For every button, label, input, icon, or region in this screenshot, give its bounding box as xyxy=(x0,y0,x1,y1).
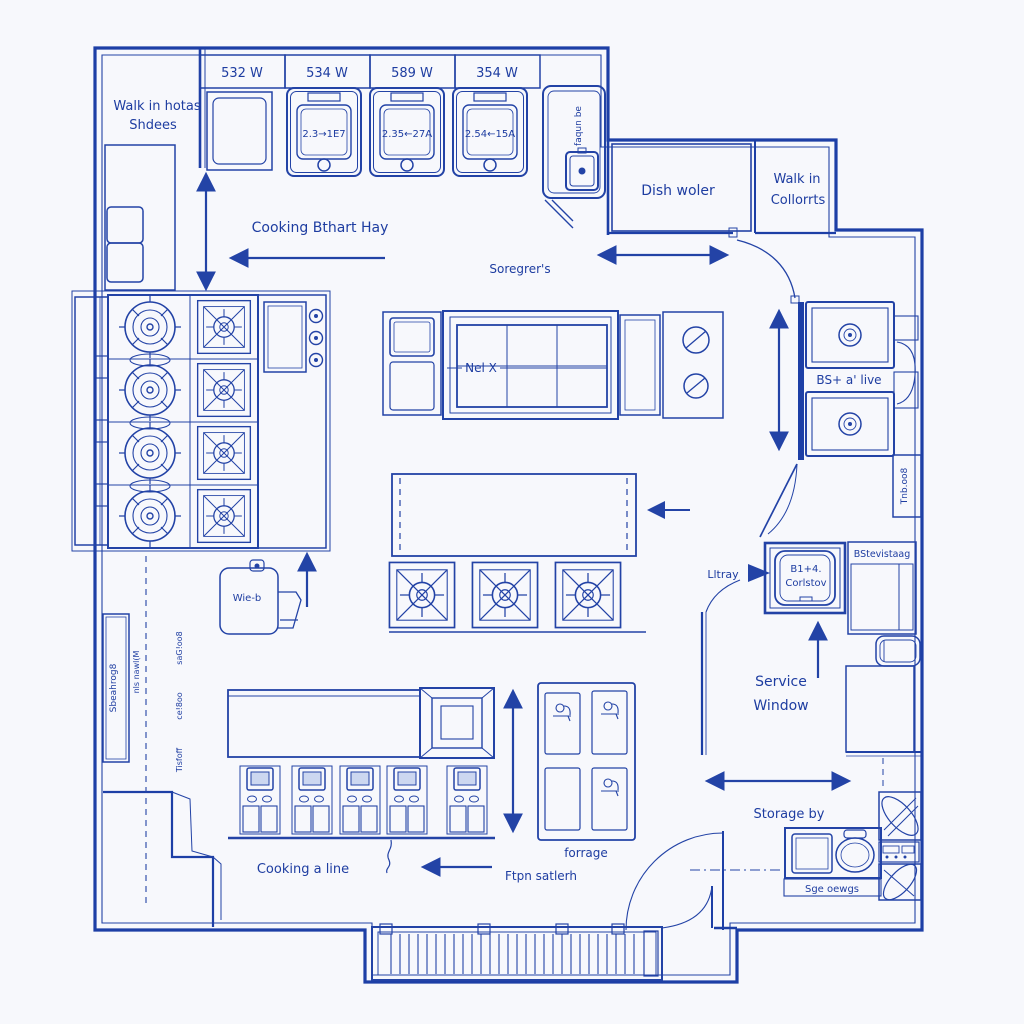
alcove: faqun be xyxy=(543,86,605,228)
door-swing-arc xyxy=(626,833,723,930)
prep-sink-label-1: B1+4. xyxy=(790,564,821,575)
table-knob-panel xyxy=(663,312,723,418)
table-top: Nel X xyxy=(443,311,618,419)
oven-label-1: 2.3→1E7 xyxy=(302,129,345,140)
center-island xyxy=(389,474,690,632)
shelf-unit xyxy=(105,145,175,290)
tray-shelf xyxy=(876,636,920,666)
table-left-cabinet xyxy=(383,312,441,415)
star-burner-1 xyxy=(198,301,251,354)
dim-label-3: 589 W xyxy=(391,66,433,81)
equipment-row: 2.3→1E7 2.35←27A 2.54←15A xyxy=(207,88,527,176)
range xyxy=(72,291,330,551)
table-label: Nel X xyxy=(465,361,497,375)
outer-walls xyxy=(95,48,922,982)
island-burner-1 xyxy=(389,562,454,627)
prep-sink-label-2: Corlstov xyxy=(785,578,826,589)
pantry-vtext: Sbeahrog8 xyxy=(109,663,119,712)
right-counter xyxy=(846,666,914,752)
wash-sink-label: Sge oewgs xyxy=(805,884,859,895)
round-burner-4 xyxy=(119,485,181,547)
litray-door-arc xyxy=(706,580,740,612)
storage-door xyxy=(626,831,723,930)
dolly-panel xyxy=(879,842,919,862)
cooking-line: Cooking a line Ftpn satlerh xyxy=(228,688,577,883)
hood-aisle: Cooking Bthart Hay Soregrer's xyxy=(232,220,726,276)
sink-unit-1 xyxy=(806,302,894,368)
round-burner-1 xyxy=(119,296,181,358)
cookline-cabinet-2 xyxy=(292,766,332,834)
wall-vtext-3: Tisfoff xyxy=(175,747,184,773)
shelf-bin-2 xyxy=(107,243,143,282)
shelf-bin-1 xyxy=(107,207,143,243)
dim-label-4: 354 W xyxy=(476,66,518,81)
star-burner-2 xyxy=(198,364,251,417)
wall-vtext-1: saG!oo8 xyxy=(175,631,184,664)
round-burner-3 xyxy=(119,422,181,484)
range-hinge-panel xyxy=(75,297,108,545)
wall-vtext-2: ce!8oo xyxy=(175,692,184,720)
island-burner-2 xyxy=(472,562,537,627)
cookline-counter xyxy=(228,690,420,757)
mixer-arm xyxy=(278,592,301,628)
pantry-box: Sbeahrog8 xyxy=(103,614,129,762)
prep-unit xyxy=(207,92,272,170)
oven-window xyxy=(264,302,306,372)
aisle-label: Soregrer's xyxy=(489,262,550,276)
storage-unit-label: forrage xyxy=(564,846,608,860)
sink-right-label: BS+ a' live xyxy=(816,373,881,387)
storage-unit: forrage xyxy=(538,683,635,860)
mixer-machine: Wie-b xyxy=(220,555,307,634)
service-area: Lltray B1+4. Corlstov BStevistaag Servic… xyxy=(706,542,920,752)
dolly-1 xyxy=(876,791,924,841)
walkin-cold-room: Walk in Collorrts xyxy=(771,172,826,208)
prep-sink: B1+4. Corlstov xyxy=(765,543,845,613)
hood-outline xyxy=(72,291,330,551)
right-shelf: BStevistaag xyxy=(848,542,916,634)
walkin-shelves-label-1: Walk in hotas xyxy=(113,99,201,114)
corner-step-wall xyxy=(103,792,213,927)
round-burner-2 xyxy=(119,359,181,421)
storage-area-label: Storage by xyxy=(754,807,825,822)
kitchen-blueprint-page: 532 W 534 W 589 W 354 W 2.3→1E7 2.35←27A… xyxy=(0,0,1024,1024)
bottom-door xyxy=(662,886,712,928)
walkin-cold-label-1: Walk in xyxy=(773,172,820,187)
cookline-cabinet-1 xyxy=(240,766,280,834)
walkin-shelves-label-2: Shdees xyxy=(129,118,177,133)
hood-label: Cooking Bthart Hay xyxy=(252,220,389,236)
bottom-grate xyxy=(372,924,662,980)
faucet-icon xyxy=(601,702,619,719)
star-burner-3 xyxy=(198,427,251,480)
cook-line-label: Cooking a line xyxy=(257,862,349,877)
wall-fixture-1 xyxy=(894,316,918,340)
sink-area-door xyxy=(760,464,797,537)
kitchen-blueprint: 532 W 534 W 589 W 354 W 2.3→1E7 2.35←27A… xyxy=(0,0,1024,1024)
outer-wall-line xyxy=(95,48,922,982)
right-sink-station: BS+ a' live Tnb.oo8 xyxy=(760,302,921,537)
right-vtext: Tnb.oo8 xyxy=(900,467,910,505)
walkin-shelves-room: Walk in hotas Shdees xyxy=(105,99,206,290)
callout-squiggle xyxy=(387,840,392,873)
shelf-right-label: BStevistaag xyxy=(854,549,911,560)
dimension-row: 532 W 534 W 589 W 354 W xyxy=(200,55,540,88)
star-burner-4 xyxy=(198,490,251,543)
cookline-cabinet-5 xyxy=(447,766,487,834)
alcove-vtext: faqun be xyxy=(574,106,584,146)
right-vtext-box: Tnb.oo8 xyxy=(893,455,921,517)
machine-label: Wie-b xyxy=(233,593,262,604)
litray-arrow xyxy=(748,564,770,582)
wall-fixture-curve xyxy=(897,342,915,404)
walkin-cold-label-2: Collorrts xyxy=(771,193,826,208)
service-window-label-1: Service xyxy=(755,674,807,690)
alcove-corner-bevel xyxy=(545,200,573,228)
cookline-cabinet-4 xyxy=(387,766,427,834)
cookline-sink-square xyxy=(420,688,494,758)
faucet-icon xyxy=(601,779,619,796)
storage-area: Storage by Sge oewgs xyxy=(626,758,924,930)
prep-table: Nel X xyxy=(383,311,723,419)
walkin-door xyxy=(729,228,799,303)
door-swing-arc xyxy=(737,240,795,298)
prep-area-label: Ftpn satlerh xyxy=(505,869,577,883)
range-control-panel xyxy=(258,295,326,548)
wash-sink xyxy=(785,828,881,878)
door-swing-arc xyxy=(662,886,712,928)
table-side-panel xyxy=(620,315,660,415)
island-burner-3 xyxy=(555,562,620,627)
sink-unit-2 xyxy=(806,392,894,456)
dish-room: Dish woler xyxy=(612,144,751,231)
oven-label-2: 2.35←27A xyxy=(382,129,432,140)
cookline-cabinet-3 xyxy=(340,766,380,834)
dim-label-2: 534 W xyxy=(306,66,348,81)
service-window-label-2: Window xyxy=(753,698,808,714)
faucet-icon xyxy=(553,704,571,721)
dim-label-1: 532 W xyxy=(221,66,263,81)
towel-dispenser xyxy=(566,148,598,190)
dish-room-label: Dish woler xyxy=(641,183,715,199)
litray-label: Lltray xyxy=(707,568,739,581)
oven-label-3: 2.54←15A xyxy=(465,129,515,140)
corridor-vtext: nls nawl(M xyxy=(132,651,141,694)
